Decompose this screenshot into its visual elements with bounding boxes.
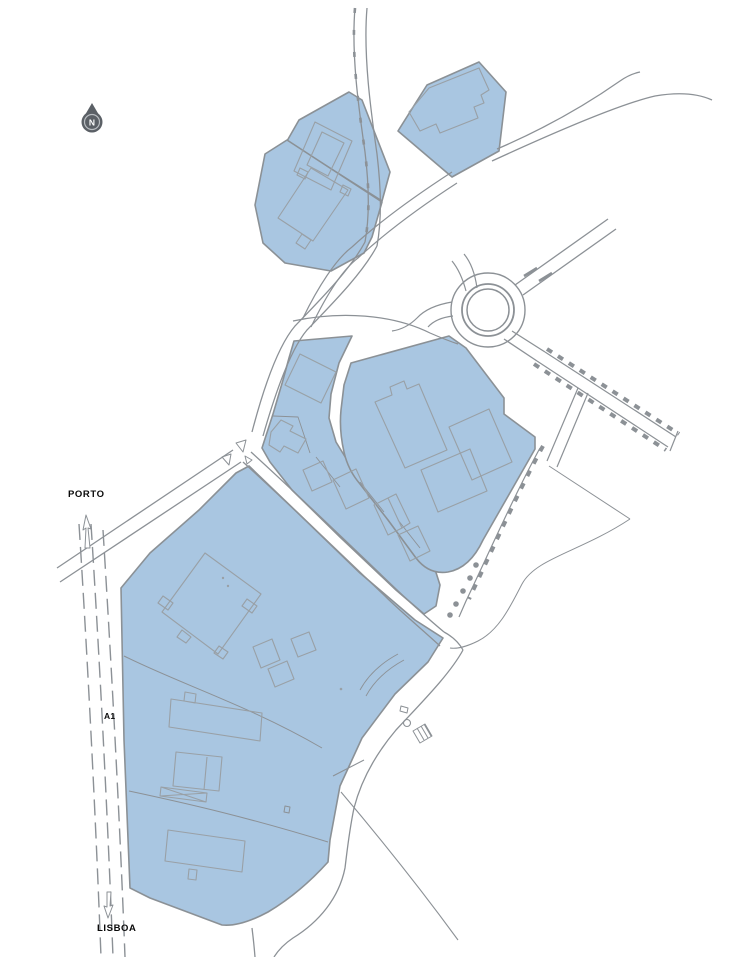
tree-road-se-dashes-north (547, 349, 679, 434)
roundabout-inner-circle (467, 289, 509, 331)
map-canvas: N PORTO A1 LISBOA (0, 0, 741, 957)
junction-island-3 (245, 456, 252, 464)
roundabout-west-hook-a (392, 302, 452, 331)
parcel-south-dot-2 (227, 585, 229, 587)
tree-road-se-south-line (537, 361, 668, 447)
symbol-hatched-rect (413, 724, 432, 743)
roundabout-west-hook-b (428, 316, 453, 327)
arrow-north-porto (83, 515, 91, 548)
roundabout-mid-circle (462, 284, 514, 336)
road-branch-south-a (547, 388, 578, 461)
tree-dot-4 (453, 601, 459, 607)
road-northeast-upper-line (497, 72, 640, 149)
roundabout-hatch-marks (524, 268, 552, 281)
field-line-east (549, 466, 630, 519)
junction-island-2 (222, 454, 231, 465)
parcel-south-dot-3 (340, 688, 343, 691)
label-lisboa: LISBOA (97, 923, 137, 934)
tree-road-se-north-line (545, 352, 676, 437)
road-northeast-lower-line (492, 94, 712, 161)
roundabout-north-stub-b (464, 254, 477, 288)
junction-island-1 (236, 440, 246, 452)
north-letter: N (89, 118, 95, 128)
site-plan-map: N PORTO A1 LISBOA (0, 0, 741, 957)
roundabout-ne-spoke-b (523, 229, 616, 295)
roundabout-ne-spoke-a (515, 219, 608, 285)
tree-dot-1 (473, 562, 479, 568)
tree-dot-5 (447, 612, 453, 618)
north-symbol: N (82, 103, 103, 133)
tree-dot-2 (467, 575, 473, 581)
road-branch-south-b (557, 393, 588, 467)
label-porto: PORTO (68, 489, 105, 500)
a1-lane-line-1 (79, 524, 101, 957)
arrow-south-lisboa (104, 892, 113, 918)
road-south-west-tail (252, 928, 255, 957)
parcels-layer (121, 62, 535, 925)
roundabout-se-spoke-b (504, 339, 537, 361)
path-branch-southeast (341, 792, 458, 940)
roundabout-se-spoke-a (512, 331, 545, 352)
tree-dot-3 (460, 588, 466, 594)
parcel-south-dot-1 (222, 577, 224, 579)
tree-road-se-dashes-south (534, 364, 666, 450)
label-a1: A1 (104, 711, 115, 721)
symbol-small-circle (404, 720, 411, 727)
symbol-small-dash (400, 706, 408, 713)
